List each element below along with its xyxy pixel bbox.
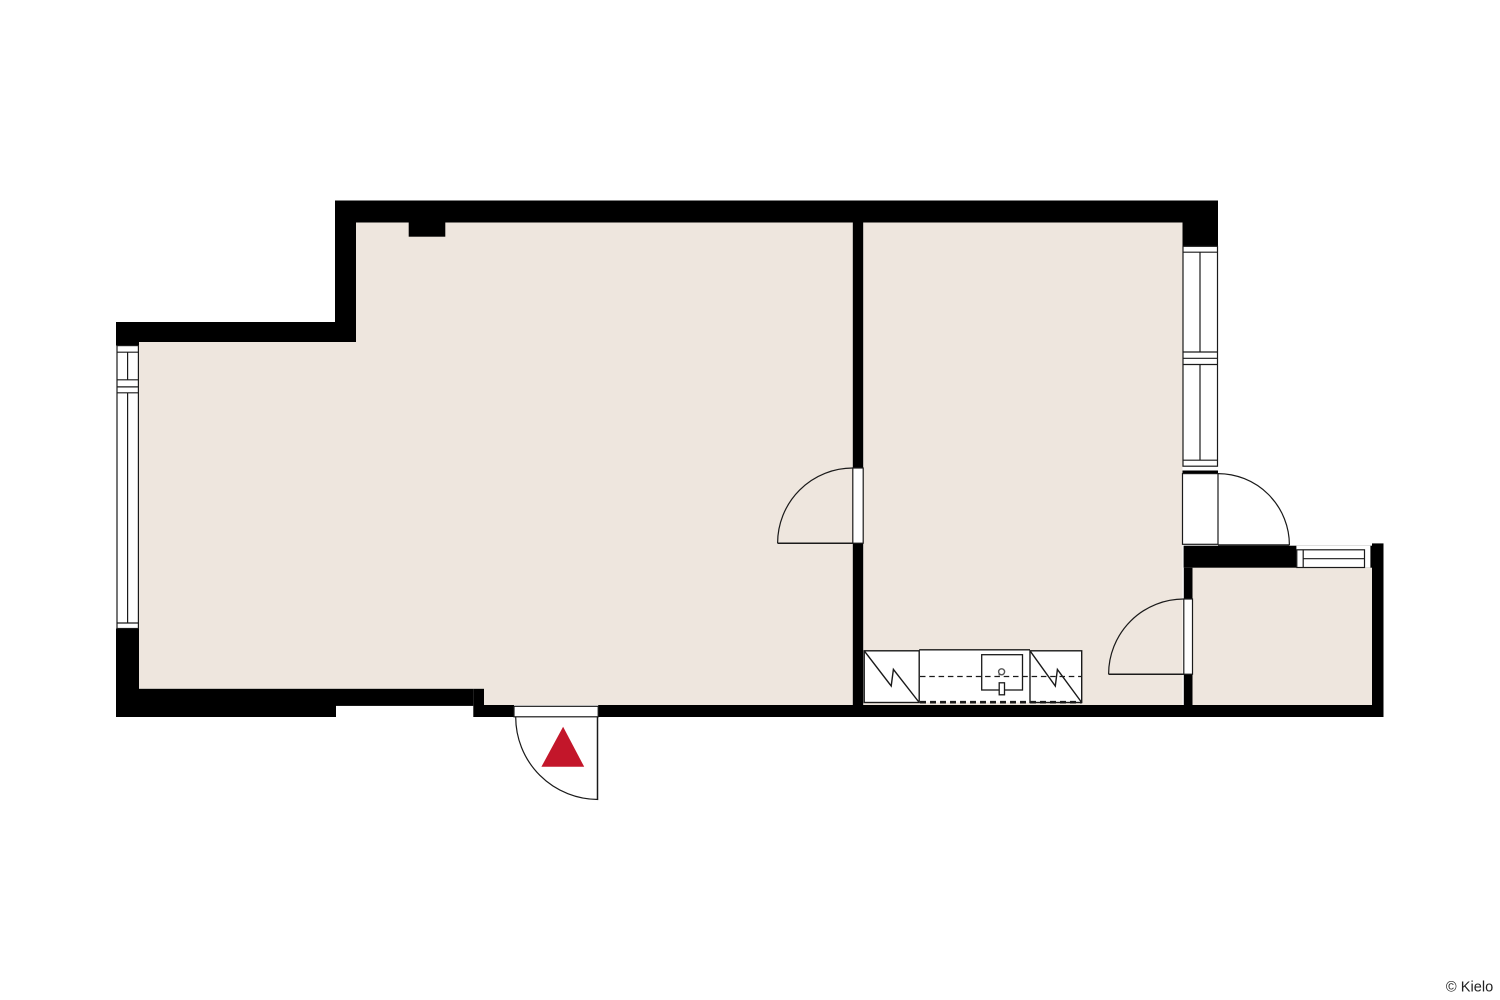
svg-text:© Kielo: © Kielo xyxy=(1446,980,1493,996)
